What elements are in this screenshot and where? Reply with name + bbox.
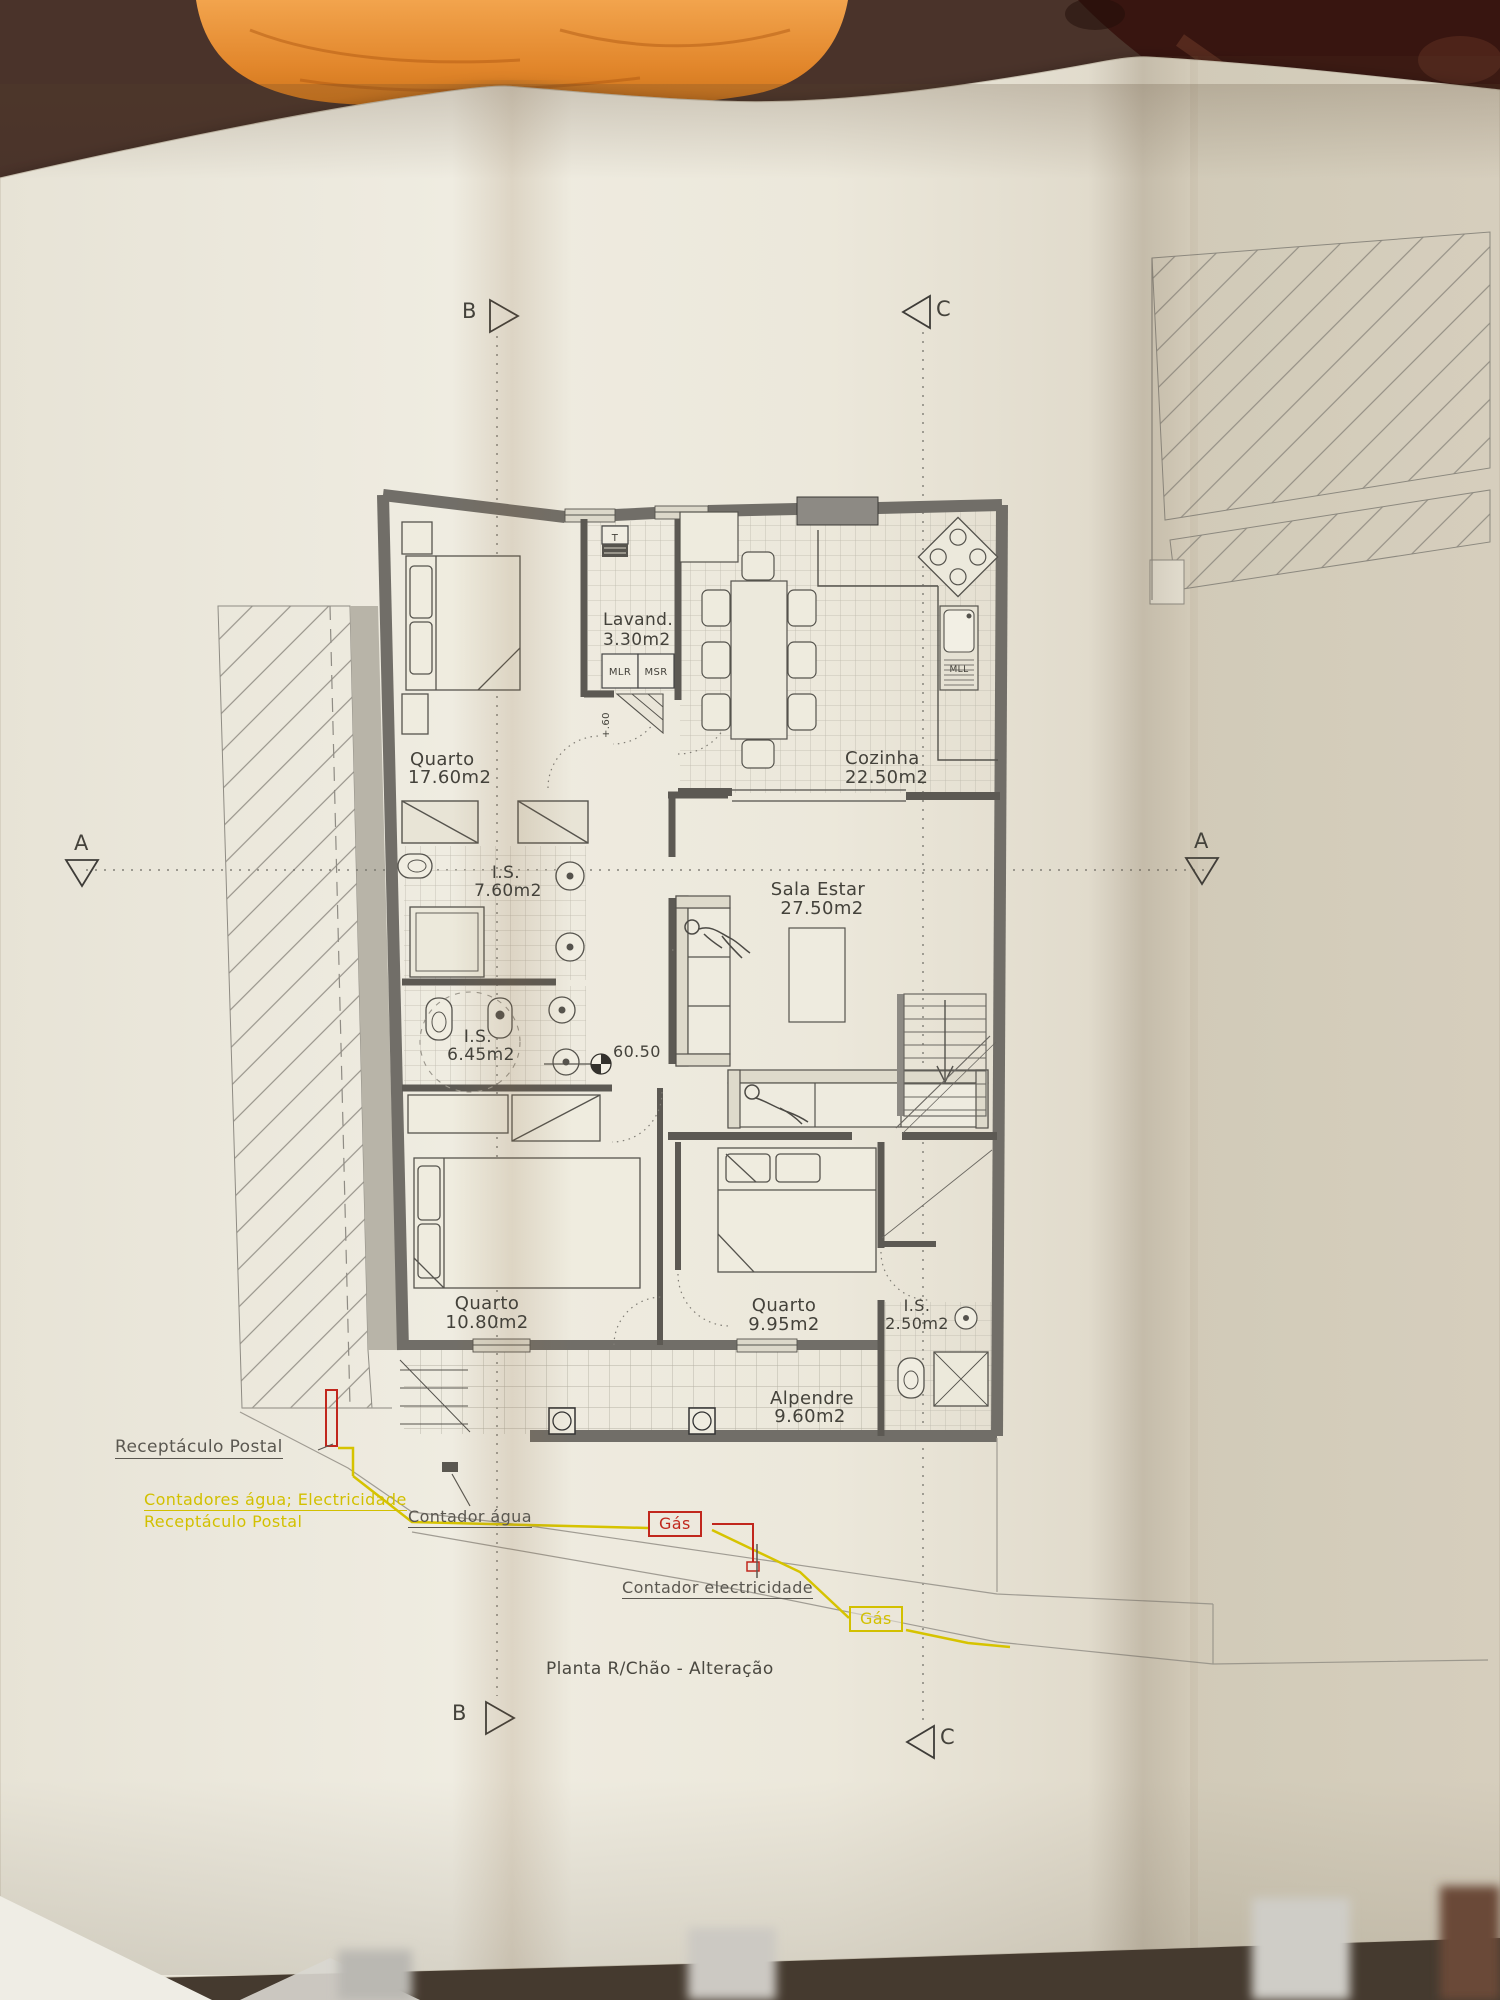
room-label-quarto-1080-name: Quarto (455, 1294, 519, 1313)
chair (742, 740, 774, 768)
section-marker-c-bottom: C (940, 1728, 955, 1747)
room-label-is250-name: I.S. (904, 1296, 931, 1315)
sofa-horizontal-seat (728, 1083, 988, 1127)
chair (742, 552, 774, 580)
bedroom3-furniture (718, 1148, 876, 1272)
section-marker-c-top: C (936, 300, 951, 319)
neighbour-hatch-left (218, 606, 398, 1408)
room-label-is250-area: 2.50m2 (885, 1314, 949, 1333)
section-marker-b-bottom: B (452, 1704, 467, 1723)
room-label-cozinha-area: 22.50m2 (845, 768, 928, 787)
annotation-contador-agua: Contador água (408, 1507, 532, 1526)
elevation-value: 60.50 (613, 1042, 661, 1061)
room-label-quarto-1080-area: 10.80m2 (445, 1313, 528, 1332)
room-label-is645-area: 6.45m2 (447, 1046, 515, 1065)
chair (788, 694, 816, 730)
annotation-contador-electricidade: Contador electricidade (622, 1578, 813, 1597)
sofa-vertical-seat (688, 908, 730, 1054)
section-marker-a-left: A (74, 834, 89, 853)
annotation-receptaculo-postal-2: Receptáculo Postal (144, 1512, 302, 1531)
photo-of-floor-plan: Quarto 17.60m2 Lavand. 3.30m2 Cozinha 22… (0, 0, 1500, 2000)
dryer-label: MSR (644, 663, 667, 682)
neighbour-hatch-top-right (1150, 232, 1490, 604)
chimney-block (797, 497, 878, 525)
room-label-quarto-995-name: Quarto (752, 1296, 816, 1315)
washing-machine-label: MLR (609, 663, 631, 682)
annotation-gas-yellow: Gás (849, 1606, 903, 1632)
toilet (426, 998, 452, 1040)
room-label-sala-name: Sala Estar (771, 880, 865, 899)
coffee-table (789, 928, 845, 1022)
toilet (898, 1358, 924, 1398)
annotation-receptaculo-postal: Receptáculo Postal (115, 1438, 283, 1457)
sink-label: MLL (950, 661, 969, 680)
room-label-cozinha-name: Cozinha (845, 749, 920, 768)
step-height-value: +.60 (597, 696, 616, 738)
section-marker-a-right: A (1194, 832, 1209, 851)
annotation-gas-red: Gás (648, 1511, 702, 1537)
room-label-sala-area: 27.50m2 (780, 899, 863, 918)
dining-table (731, 581, 787, 739)
room-label-lavand-area: 3.30m2 (603, 631, 671, 650)
water-heater-label: T (612, 529, 619, 548)
chair (788, 642, 816, 678)
shower (410, 907, 484, 977)
toilet (398, 854, 432, 878)
drawing-title: Planta R/Chão - Alteração (546, 1660, 774, 1679)
fridge (680, 512, 738, 562)
room-label-lavand-name: Lavand. (603, 611, 673, 630)
shelf (408, 1095, 508, 1133)
floor-plan-drawing (0, 0, 1500, 2000)
bed (414, 1158, 640, 1288)
room-label-is760-area: 7.60m2 (474, 882, 542, 901)
chair (702, 694, 730, 730)
room-label-quarto-995-area: 9.95m2 (748, 1315, 819, 1334)
section-marker-b-top: B (462, 302, 477, 321)
chair (702, 590, 730, 626)
chair (788, 590, 816, 626)
room-label-alpendre-area: 9.60m2 (774, 1407, 845, 1426)
room-label-quarto-1760-area: 17.60m2 (408, 768, 491, 787)
chair (702, 642, 730, 678)
sofa-vertical-back (676, 896, 688, 1066)
annotation-contadores: Contadores água; Electricidade (144, 1490, 407, 1509)
